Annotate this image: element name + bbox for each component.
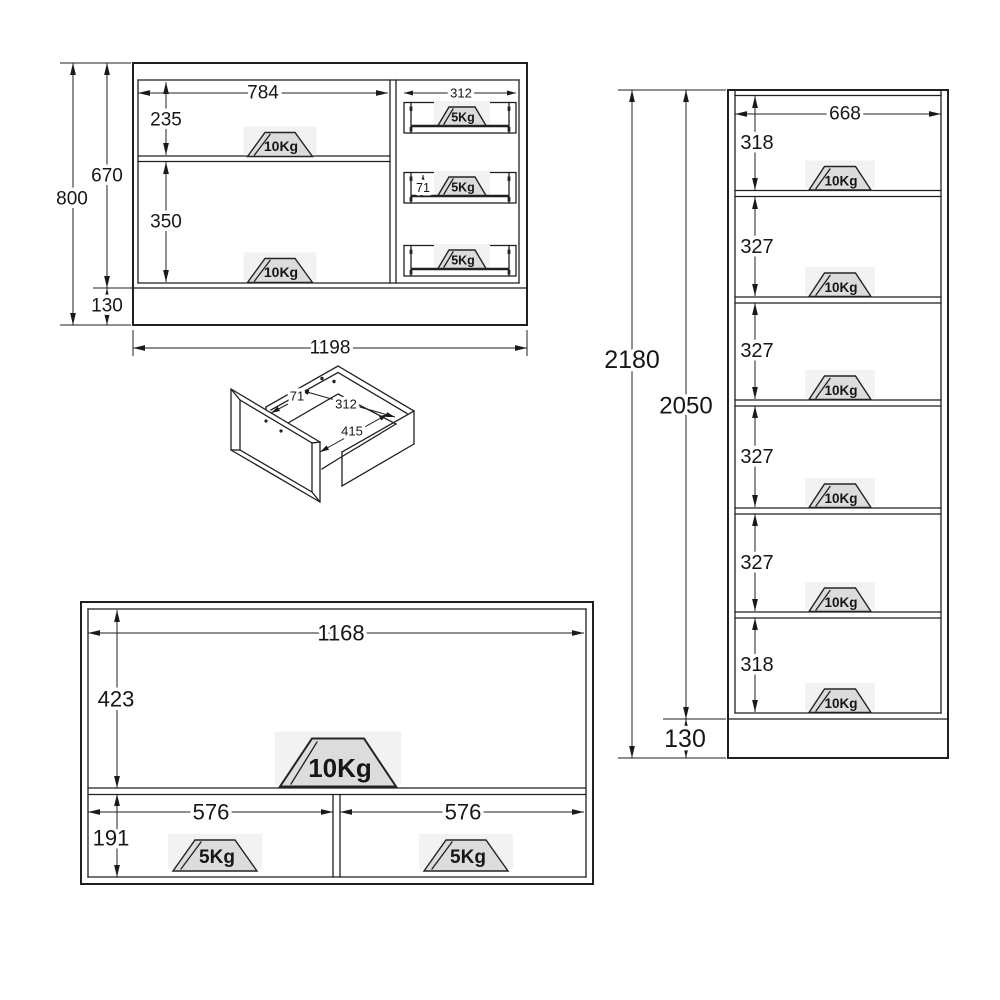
load-label: 10Kg [824,280,857,295]
dim-inner-width: 1168 [317,621,364,646]
max-load-badge-10kg: 10Kg [805,478,875,508]
max-load-badge-10kg: 10Kg [244,253,317,283]
cabinet-front-view: 10Kg 10Kg 5Kg 5Kg 5Kg [56,63,527,359]
dim-drawer3d-depth: 415 [341,424,363,439]
load-label: 5Kg [451,111,475,125]
max-load-badge-10kg: 10Kg [805,582,875,612]
max-load-badge-5kg: 5Kg [419,834,513,871]
max-load-badge-5kg: 5Kg [434,171,490,196]
max-load-badge-5kg: 5Kg [168,834,262,871]
dim-compartment-5: 327 [740,552,773,574]
max-load-badge-5kg: 5Kg [434,244,490,269]
dim-carcass-height: 2050 [659,393,712,420]
dim-inner-width: 668 [829,104,861,125]
dim-left-compartment-width: 576 [193,800,230,825]
max-load-badge-10kg: 10Kg [805,370,875,400]
load-label: 10Kg [824,491,857,506]
dim-shelf-width: 784 [247,83,279,104]
max-load-badge-10kg: 10Kg [805,267,875,297]
drawer-isometric-view: 71 312 415 [231,366,414,502]
dim-compartment-1: 318 [740,132,773,154]
dim-drawer-width: 312 [450,86,472,101]
load-label: 10Kg [264,264,298,280]
load-label: 5Kg [451,254,475,268]
low-unit-front-view: 10Kg 5Kg 5Kg 1168 423 191 576 576 [81,602,593,884]
dim-drawer3d-width: 312 [335,397,357,412]
max-load-badge-10kg: 10Kg [805,161,875,191]
dim-bottom-compartment: 350 [150,212,182,233]
dim-compartment-3: 327 [740,340,773,362]
load-label: 5Kg [450,847,486,868]
dim-compartment-2: 327 [740,236,773,258]
load-label: 10Kg [824,383,857,398]
dim-drawer-height: 71 [416,181,430,195]
dim-plinth-height: 130 [664,725,706,753]
load-label: 10Kg [308,753,372,783]
dim-overall-height: 2180 [604,346,660,374]
furniture-dimension-sheet: 10Kg 10Kg 5Kg 5Kg 5Kg [0,0,1000,1000]
load-label: 10Kg [264,138,298,154]
load-label: 10Kg [824,174,857,189]
tall-unit-front-view: 10Kg 10Kg 10Kg 10Kg 10Kg [604,90,948,758]
dim-right-compartment-width: 576 [445,800,482,825]
dim-carcass-height: 670 [91,166,123,187]
screw-hole [264,419,267,422]
load-label: 5Kg [199,847,235,868]
dim-overall-height: 800 [56,189,88,210]
max-load-badge-5kg: 5Kg [434,101,490,126]
screw-hole [279,429,282,432]
dim-plinth-height: 130 [91,296,123,317]
drawer-front-panel [231,389,320,502]
load-label: 5Kg [451,181,475,195]
load-label: 10Kg [824,696,857,711]
screw-hole [320,377,323,380]
dim-top-compartment: 423 [98,687,135,712]
dim-overall-width: 1198 [310,338,351,359]
dim-drawer3d-height: 71 [290,389,304,404]
dim-bottom-compartment: 191 [93,826,130,851]
screw-hole [332,380,335,383]
max-load-badge-10kg-large: 10Kg [275,732,401,787]
max-load-badge-10kg: 10Kg [805,683,875,713]
dim-top-compartment: 235 [150,110,182,131]
load-label: 10Kg [824,595,857,610]
dim-compartment-6: 318 [740,654,773,676]
max-load-badge-10kg: 10Kg [244,127,317,157]
technical-drawing: 10Kg 10Kg 5Kg 5Kg 5Kg [0,0,1000,1000]
dim-compartment-4: 327 [740,446,773,468]
